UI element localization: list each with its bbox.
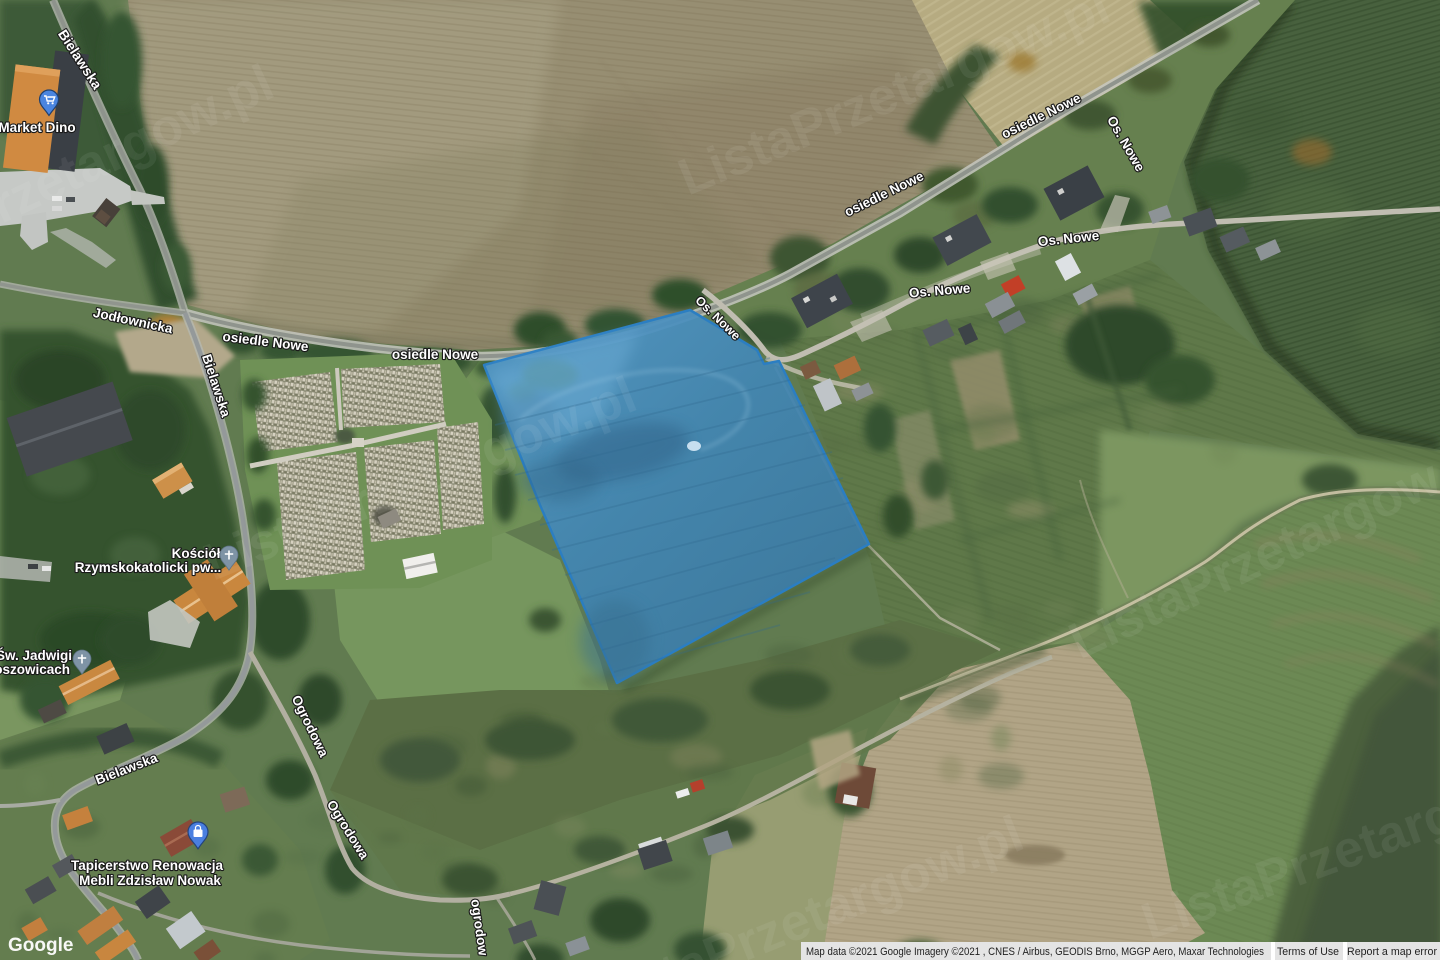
svg-text:Terms of Use: Terms of Use xyxy=(1277,946,1339,958)
svg-text:Tapicerstwo Renowacja: Tapicerstwo Renowacja xyxy=(71,858,224,873)
svg-text:oszowicach: oszowicach xyxy=(0,662,70,677)
svg-text:Report a map error: Report a map error xyxy=(1347,946,1437,958)
svg-text:Mebli Zdzisław Nowak: Mebli Zdzisław Nowak xyxy=(79,873,221,888)
svg-text:Market Dino: Market Dino xyxy=(0,120,76,135)
svg-text:Map data ©2021 Google Imagery: Map data ©2021 Google Imagery ©2021 , CN… xyxy=(806,946,1264,958)
svg-text:Kościół: Kościół xyxy=(172,546,221,561)
svg-text:Rzymskokatolicki pw...: Rzymskokatolicki pw... xyxy=(75,560,222,575)
svg-text:Św. Jadwigi: Św. Jadwigi xyxy=(0,648,72,663)
svg-text:osiedle Nowe: osiedle Nowe xyxy=(392,347,479,362)
svg-text:Google: Google xyxy=(8,935,73,956)
